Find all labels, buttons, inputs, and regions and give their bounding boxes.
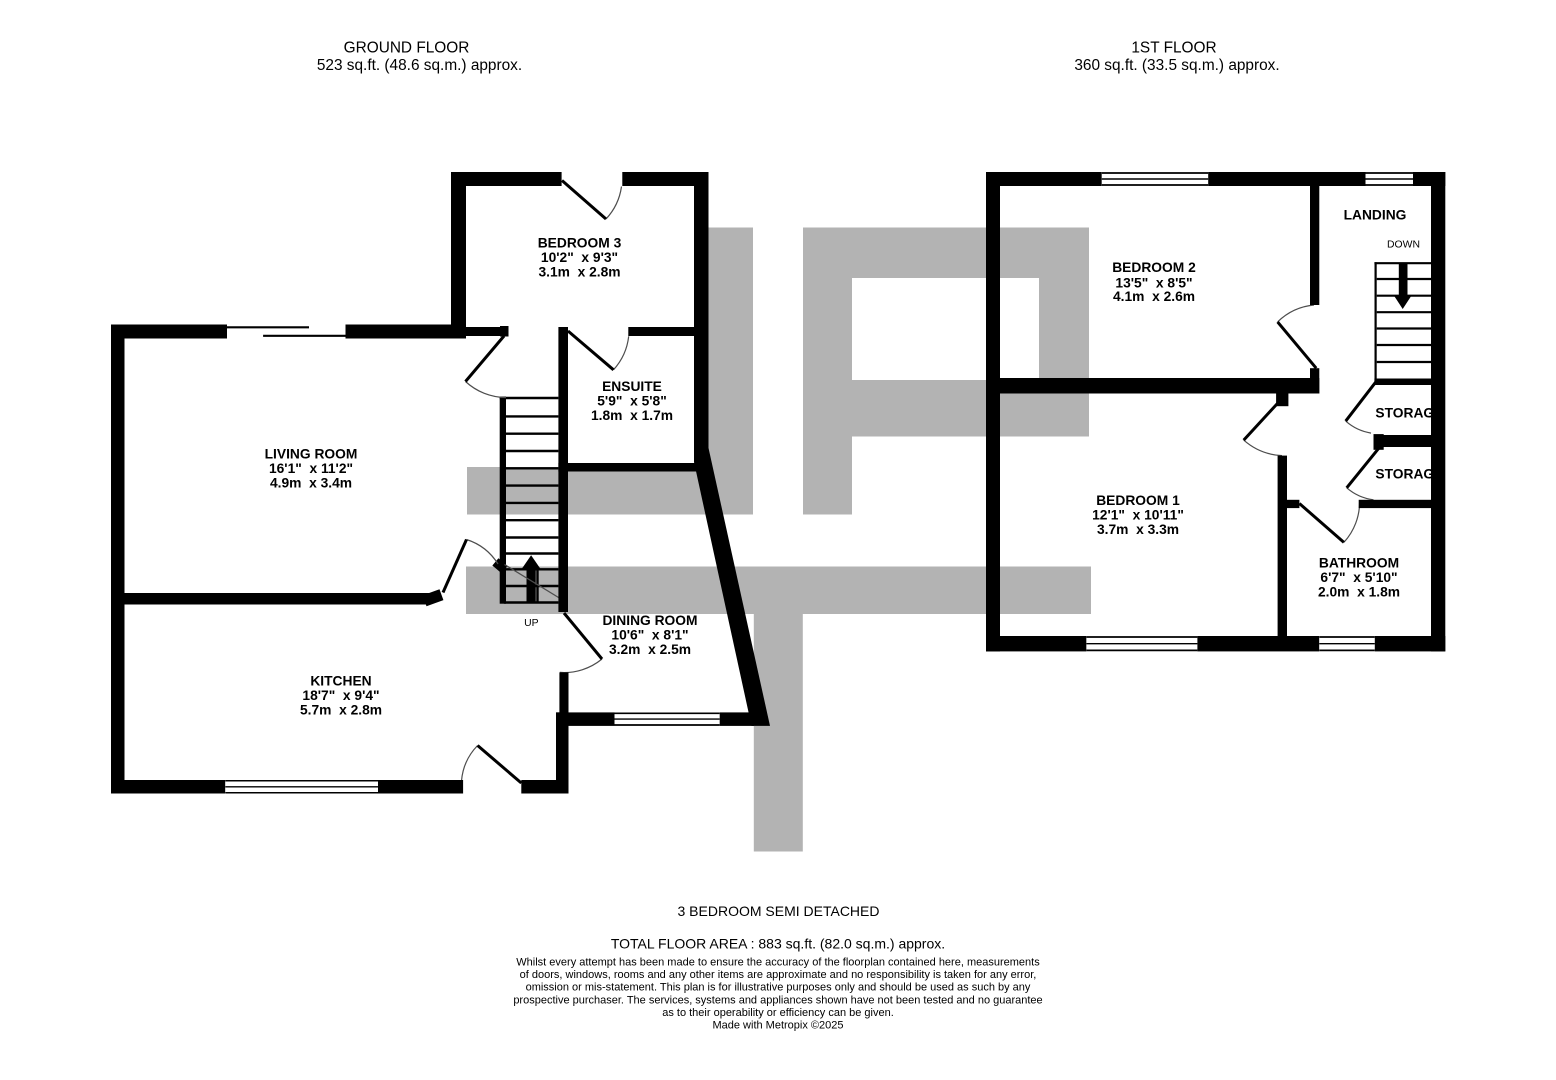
svg-text:4.1m x 2.6m: 4.1m x 2.6m (1113, 289, 1195, 304)
svg-text:UP: UP (524, 618, 539, 629)
svg-text:6'7" x 5'10": 6'7" x 5'10" (1320, 570, 1397, 585)
svg-text:3.2m x 2.5m: 3.2m x 2.5m (609, 642, 691, 657)
svg-text:omission or mis-statement. Thi: omission or mis-statement. This plan is … (526, 982, 1031, 994)
svg-text:prospective purchaser. The ser: prospective purchaser. The services, sys… (513, 994, 1042, 1006)
svg-text:10'2" x 9'3": 10'2" x 9'3" (541, 250, 618, 265)
svg-text:DINING ROOM: DINING ROOM (602, 613, 697, 628)
svg-text:16'1" x 11'2": 16'1" x 11'2" (269, 461, 353, 476)
svg-text:LIVING ROOM: LIVING ROOM (265, 447, 358, 462)
svg-text:10'6" x 8'1": 10'6" x 8'1" (611, 628, 688, 643)
svg-text:BEDROOM 2: BEDROOM 2 (1112, 260, 1196, 275)
svg-text:2.0m x 1.8m: 2.0m x 1.8m (1318, 585, 1400, 600)
svg-text:3 BEDROOM SEMI DETACHED: 3 BEDROOM SEMI DETACHED (678, 903, 880, 919)
svg-text:ENSUITE: ENSUITE (602, 379, 662, 394)
svg-text:5.7m x 2.8m: 5.7m x 2.8m (300, 703, 382, 718)
svg-text:GROUND FLOOR: GROUND FLOOR (344, 40, 470, 57)
svg-text:BATHROOM: BATHROOM (1319, 556, 1399, 571)
svg-text:360 sq.ft. (33.5 sq.m.) approx: 360 sq.ft. (33.5 sq.m.) approx. (1074, 57, 1279, 74)
svg-text:of doors, windows, rooms and a: of doors, windows, rooms and any other i… (520, 969, 1037, 981)
svg-text:1.8m x 1.7m: 1.8m x 1.7m (591, 408, 673, 423)
svg-text:KITCHEN: KITCHEN (310, 674, 371, 689)
svg-text:Made with Metropix ©2025: Made with Metropix ©2025 (712, 1019, 843, 1031)
svg-text:Whilst every attempt has been: Whilst every attempt has been made to en… (516, 957, 1040, 969)
svg-text:18'7" x 9'4": 18'7" x 9'4" (302, 688, 379, 703)
svg-text:523 sq.ft. (48.6 sq.m.) approx: 523 sq.ft. (48.6 sq.m.) approx. (317, 57, 522, 74)
svg-text:TOTAL FLOOR AREA : 883 sq.ft.: TOTAL FLOOR AREA : 883 sq.ft. (82.0 sq.m… (611, 936, 945, 952)
svg-text:as to their operability or eff: as to their operability or efficiency ca… (662, 1007, 894, 1019)
svg-text:LANDING: LANDING (1344, 208, 1407, 223)
svg-text:3.1m x 2.8m: 3.1m x 2.8m (538, 264, 620, 279)
svg-text:12'1" x 10'11": 12'1" x 10'11" (1092, 508, 1184, 523)
svg-text:5'9" x 5'8": 5'9" x 5'8" (597, 394, 667, 409)
svg-text:BEDROOM 3: BEDROOM 3 (538, 235, 622, 250)
svg-text:3.7m x 3.3m: 3.7m x 3.3m (1097, 522, 1179, 537)
svg-text:BEDROOM 1: BEDROOM 1 (1096, 493, 1180, 508)
svg-text:DOWN: DOWN (1387, 240, 1420, 251)
svg-text:1ST FLOOR: 1ST FLOOR (1131, 40, 1216, 57)
svg-text:4.9m x 3.4m: 4.9m x 3.4m (270, 476, 352, 491)
